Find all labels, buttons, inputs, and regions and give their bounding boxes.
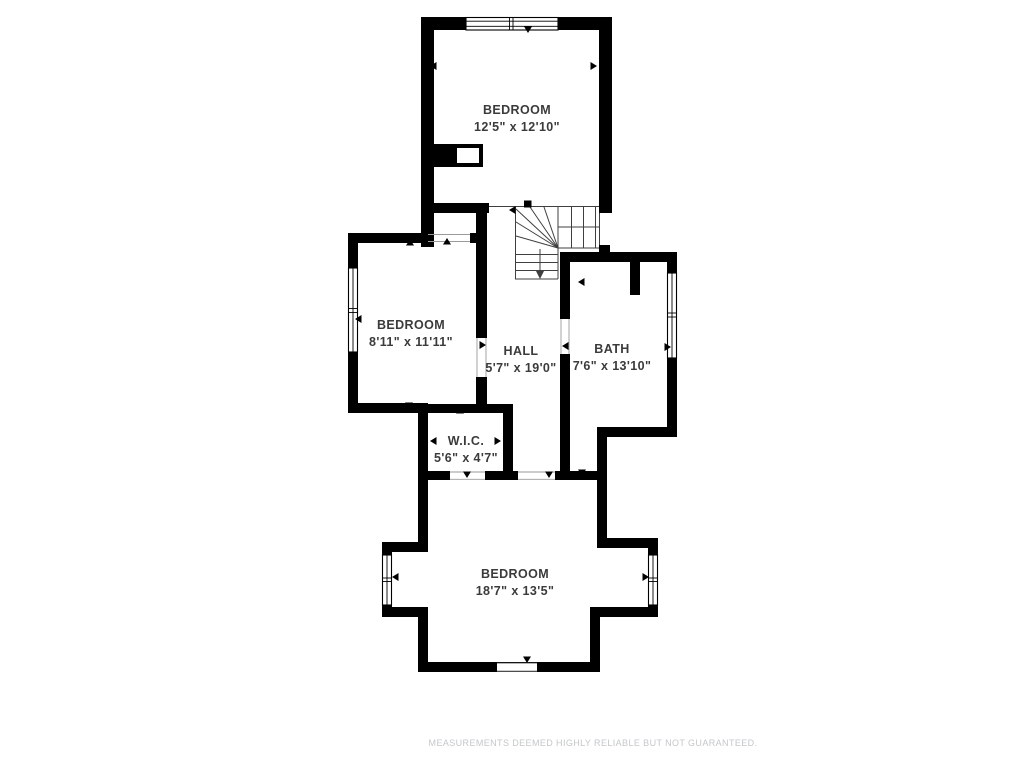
window-bath [668, 273, 677, 358]
floor-plan-page: BEDROOM 12'5" x 12'10" BEDROOM 8'11" x 1… [0, 0, 1024, 768]
room-dims: 18'7" x 13'5" [476, 584, 555, 598]
room-dims: 7'6" x 13'10" [573, 359, 652, 373]
opening-bottom-bedroom [497, 663, 537, 672]
staircase [489, 207, 600, 280]
floor-plan: BEDROOM 12'5" x 12'10" BEDROOM 8'11" x 1… [0, 0, 1024, 768]
room-label-hall: HALL 5'7" x 19'0" [485, 344, 556, 375]
window-bottom-bedroom-left [383, 555, 392, 605]
room-dims: 8'11" x 11'11" [369, 335, 453, 349]
room-name: BATH [594, 342, 629, 356]
room-dims: 5'6" x 4'7" [434, 451, 498, 465]
window-top-bedroom [466, 18, 558, 31]
room-dims: 12'5" x 12'10" [474, 120, 560, 134]
room-label-wic: W.I.C. 5'6" x 4'7" [434, 434, 498, 465]
window-bottom-bedroom-right [649, 555, 658, 605]
disclaimer-text: MEASUREMENTS DEEMED HIGHLY RELIABLE BUT … [429, 738, 758, 748]
chimney [424, 144, 483, 167]
room-label-bedroom-top: BEDROOM 12'5" x 12'10" [474, 103, 560, 134]
room-name: BEDROOM [483, 103, 551, 117]
room-name: BEDROOM [481, 567, 549, 581]
room-label-bath: BATH 7'6" x 13'10" [573, 342, 652, 373]
room-name: W.I.C. [448, 434, 484, 448]
window-left-bedroom [349, 268, 358, 352]
room-name: BEDROOM [377, 318, 445, 332]
stair-down-arrow-icon [536, 270, 545, 279]
room-label-bedroom-left: BEDROOM 8'11" x 11'11" [369, 318, 453, 349]
room-name: HALL [504, 344, 539, 358]
room-dims: 5'7" x 19'0" [485, 361, 556, 375]
room-label-bedroom-bottom: BEDROOM 18'7" x 13'5" [476, 567, 555, 598]
